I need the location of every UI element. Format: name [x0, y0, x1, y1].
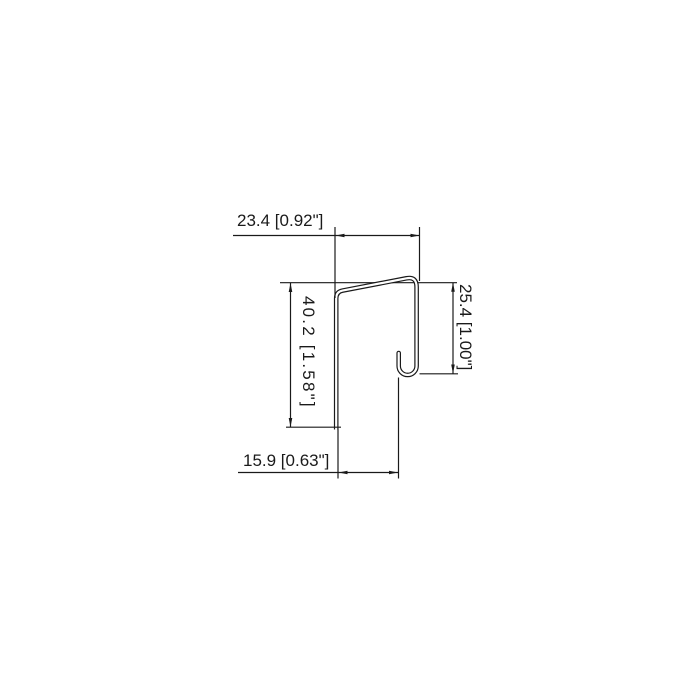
dimension-left: 40.2 [1.58"] [286, 283, 341, 427]
arrowhead-right [389, 471, 398, 475]
arrowhead-up [451, 283, 455, 292]
arrowhead-left [336, 234, 345, 238]
profile-sheet-inner [336, 278, 416, 429]
arrowhead-right [411, 234, 420, 238]
dimension-top: 23.4 [0.92"] [233, 211, 420, 298]
profile-hook-tip-inner [398, 352, 400, 354]
dimension-right: 25.4 [1.00"] [420, 283, 476, 374]
dimension-label-bottom-width: 15.9 [0.63"] [243, 451, 329, 470]
profile-sheet-outer [336, 278, 416, 429]
arrowhead-down [451, 365, 455, 374]
profile-outline [336, 278, 416, 429]
drawing-canvas: 23.4 [0.92"] 40.2 [1.58"] 25.4 [1.00"] 1… [0, 0, 700, 700]
arrowhead-left [339, 471, 348, 475]
technical-drawing: 23.4 [0.92"] 40.2 [1.58"] 25.4 [1.00"] 1… [0, 0, 700, 700]
arrowhead-down [289, 418, 293, 427]
dimension-label-right-height: 25.4 [1.00"] [456, 284, 475, 370]
arrowhead-up [289, 283, 293, 292]
dimension-label-top-width: 23.4 [0.92"] [237, 211, 323, 230]
dimension-label-overall-height: 40.2 [1.58"] [299, 296, 318, 409]
